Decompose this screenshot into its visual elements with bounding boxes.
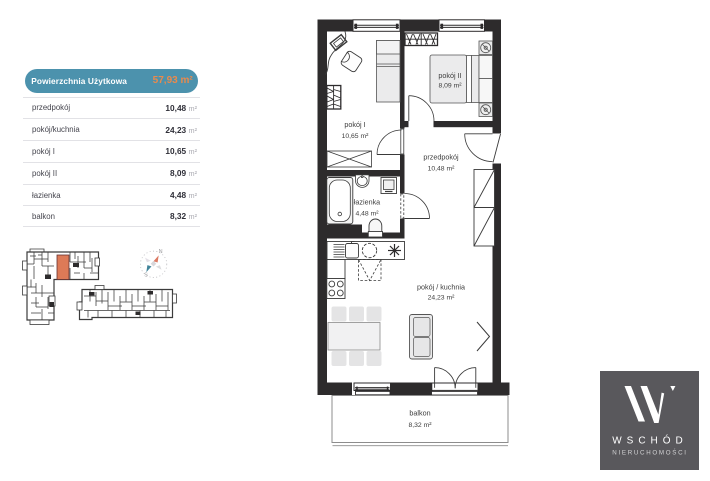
svg-text:pokój II: pokój II [438, 71, 461, 80]
svg-text:4,48 m²: 4,48 m² [355, 211, 379, 218]
svg-text:pokój I: pokój I [344, 120, 365, 129]
svg-text:10,65 m²: 10,65 m² [342, 133, 370, 140]
svg-text:S: S [144, 273, 148, 279]
svg-text:8,09 m²: 8,09 m² [438, 83, 462, 90]
svg-text:przedpokój: przedpokój [423, 153, 459, 162]
svg-text:8,32 m²: 8,32 m² [408, 422, 432, 429]
svg-text:łazienka: łazienka [354, 198, 380, 207]
svg-text:24,23 m²: 24,23 m² [428, 295, 456, 302]
svg-text:N: N [159, 249, 163, 255]
svg-text:WSCHÓD: WSCHÓD [612, 434, 688, 447]
svg-text:pokój / kuchnia: pokój / kuchnia [417, 283, 465, 292]
svg-text:NIERUCHOMOŚCI: NIERUCHOMOŚCI [612, 448, 687, 456]
svg-text:balkon: balkon [409, 409, 430, 418]
svg-text:10,48 m²: 10,48 m² [428, 166, 456, 173]
